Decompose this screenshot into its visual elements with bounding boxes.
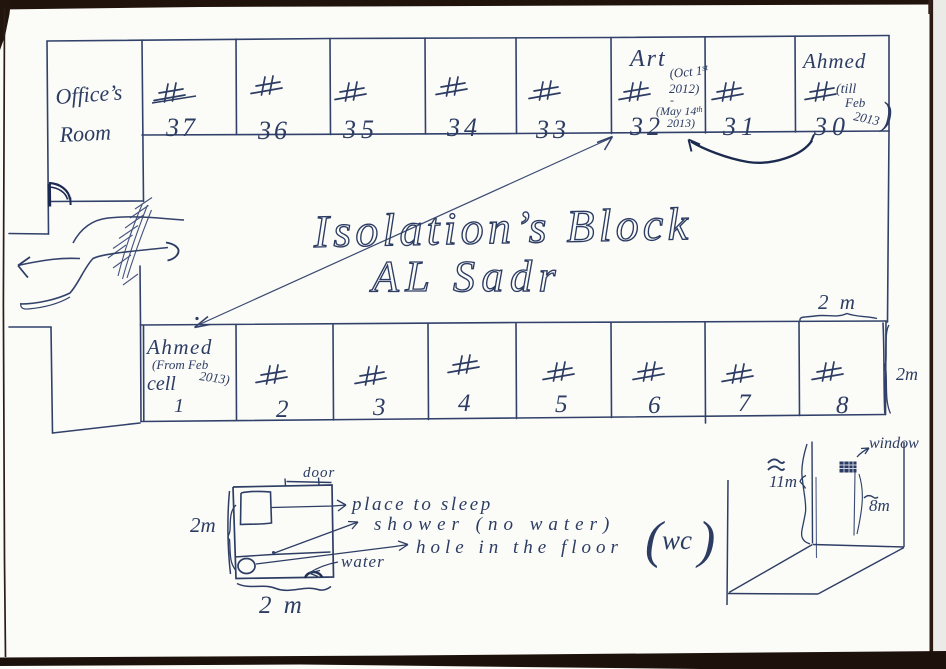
svg-text:window: window bbox=[869, 435, 919, 452]
svg-text:Room: Room bbox=[58, 119, 112, 147]
svg-text:AL Sadr: AL Sadr bbox=[369, 252, 562, 301]
svg-text:34: 34 bbox=[446, 113, 481, 142]
svg-text:8m: 8m bbox=[869, 496, 890, 515]
svg-text:2 m: 2 m bbox=[818, 290, 858, 314]
svg-text:3: 3 bbox=[372, 394, 386, 421]
svg-text:2: 2 bbox=[276, 396, 289, 423]
svg-text:11m: 11m bbox=[769, 472, 797, 491]
svg-text:cell: cell bbox=[147, 373, 176, 395]
svg-text:32: 32 bbox=[629, 112, 664, 141]
svg-text:Ahmed: Ahmed bbox=[145, 335, 213, 359]
svg-text:hole in the floor: hole in the floor bbox=[416, 537, 623, 558]
svg-text:2m: 2m bbox=[896, 364, 918, 384]
svg-text:8: 8 bbox=[836, 392, 849, 419]
svg-text:5: 5 bbox=[555, 391, 568, 418]
svg-text:36: 36 bbox=[257, 116, 290, 145]
svg-text:2m: 2m bbox=[190, 513, 216, 537]
svg-text:): ) bbox=[695, 512, 715, 569]
svg-text:1: 1 bbox=[174, 395, 184, 417]
svg-text:shower (no water): shower (no water) bbox=[374, 514, 615, 535]
svg-text:6: 6 bbox=[648, 392, 661, 419]
svg-text:water: water bbox=[341, 552, 385, 571]
svg-text:33: 33 bbox=[535, 115, 570, 144]
svg-text:35: 35 bbox=[342, 115, 379, 144]
svg-text:2013): 2013) bbox=[667, 116, 695, 130]
svg-text:4: 4 bbox=[458, 390, 471, 417]
svg-text:wc: wc bbox=[662, 525, 692, 555]
svg-text:2 m: 2 m bbox=[259, 592, 305, 619]
svg-text:31: 31 bbox=[722, 112, 759, 141]
svg-text:place to sleep: place to sleep bbox=[350, 494, 493, 515]
svg-text:Office’s: Office’s bbox=[55, 79, 123, 109]
svg-text:7: 7 bbox=[738, 390, 752, 417]
svg-text:Art: Art bbox=[628, 46, 667, 72]
svg-text:37: 37 bbox=[165, 113, 198, 142]
svg-text:Isolation’s Block: Isolation’s Block bbox=[312, 198, 692, 257]
svg-text:door: door bbox=[303, 465, 335, 481]
svg-text:30: 30 bbox=[813, 112, 850, 141]
svg-text:Ahmed: Ahmed bbox=[801, 49, 866, 73]
svg-text:): ) bbox=[879, 96, 892, 133]
